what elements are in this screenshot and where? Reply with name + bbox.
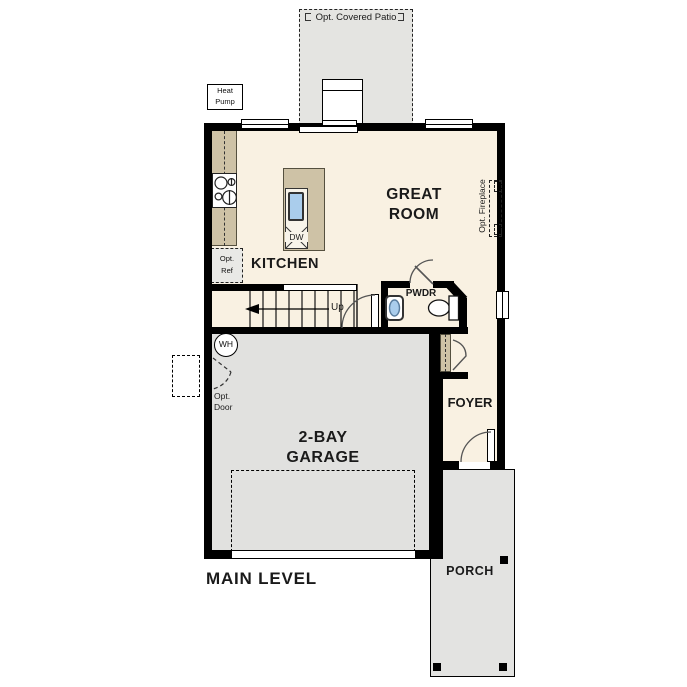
- wall-foyer-bottom-right: [490, 461, 505, 469]
- garage-door-outline: [231, 470, 415, 552]
- opt-fireplace-return-top: [494, 181, 502, 192]
- patio-corner-mark-right: [398, 13, 404, 21]
- wall-garage-bottom-right: [414, 550, 443, 559]
- opt-fireplace-return-bottom: [494, 224, 502, 235]
- porch-post-bottom-right: [499, 663, 507, 671]
- garage-door-threshold: [232, 550, 415, 559]
- opt-door-landing: [172, 355, 200, 397]
- water-heater-label: WH: [219, 339, 233, 349]
- wall-pwdr-left: [381, 284, 388, 327]
- wall-pwdr-top-right: [433, 281, 454, 288]
- opt-refrigerator: Opt. Ref: [211, 248, 243, 283]
- opt-door-label-line2: Door: [214, 402, 232, 412]
- wall-left: [204, 123, 212, 559]
- opt-ref-label-line1: Opt.: [220, 254, 234, 263]
- porch-post-bottom-left: [433, 663, 441, 671]
- wall-pwdr-top-left: [381, 281, 410, 288]
- cooktop-panel: [212, 173, 237, 208]
- kitchen-sink: [288, 192, 304, 221]
- patio-chimney: [322, 79, 363, 126]
- heat-pump-label-line2: Pump: [215, 97, 235, 106]
- great-room-label: GREAT ROOM: [364, 185, 464, 224]
- floor-plan: Opt. Covered Patio Heat Pump Opt. Ref: [0, 0, 687, 687]
- foyer-label: FOYER: [443, 395, 497, 410]
- stair-rail: [283, 284, 357, 291]
- wall-pwdr-right: [459, 298, 467, 327]
- kitchen-label: KITCHEN: [245, 256, 325, 272]
- window-great-room-right: [496, 291, 509, 319]
- heat-pump-unit: Heat Pump: [207, 84, 243, 110]
- covered-patio-label: Opt. Covered Patio: [299, 12, 413, 23]
- porch-label: PORCH: [430, 564, 510, 578]
- dishwasher-label: DW: [285, 232, 308, 242]
- garage-entry-door-leaf: [371, 294, 379, 328]
- pwdr-label: PWDR: [402, 288, 440, 299]
- opt-door-label: Opt. Door: [214, 391, 232, 412]
- patio-corner-mark-left: [305, 13, 311, 21]
- stairs-up-label: Up: [331, 302, 344, 313]
- garage-label-line1: 2-BAY: [298, 429, 347, 446]
- wall-stair-divider: [204, 284, 285, 291]
- wall-garage-bottom-left: [204, 550, 233, 559]
- garage-label-line2: GARAGE: [286, 449, 359, 466]
- garage-label: 2-BAY GARAGE: [253, 428, 393, 467]
- opt-door-label-line1: Opt.: [214, 391, 230, 401]
- great-room-label-line2: ROOM: [389, 206, 439, 223]
- front-door-leaf: [487, 429, 495, 462]
- opt-ref-label-line2: Ref: [221, 266, 233, 275]
- page-title: MAIN LEVEL: [206, 569, 317, 589]
- porch-post-top: [500, 556, 508, 564]
- patio-slider-door-leaf2: [299, 126, 358, 133]
- great-room-label-line1: GREAT: [386, 186, 442, 203]
- foyer-closet-rod-line: [445, 334, 446, 372]
- opt-fireplace-label: Opt. Fireplace: [477, 165, 487, 247]
- window-great-room-top: [425, 119, 473, 129]
- heat-pump-label-line1: Heat: [217, 86, 233, 95]
- water-heater-icon: WH: [214, 333, 238, 357]
- window-kitchen: [241, 119, 289, 129]
- wall-foyer-bottom-left: [443, 461, 459, 469]
